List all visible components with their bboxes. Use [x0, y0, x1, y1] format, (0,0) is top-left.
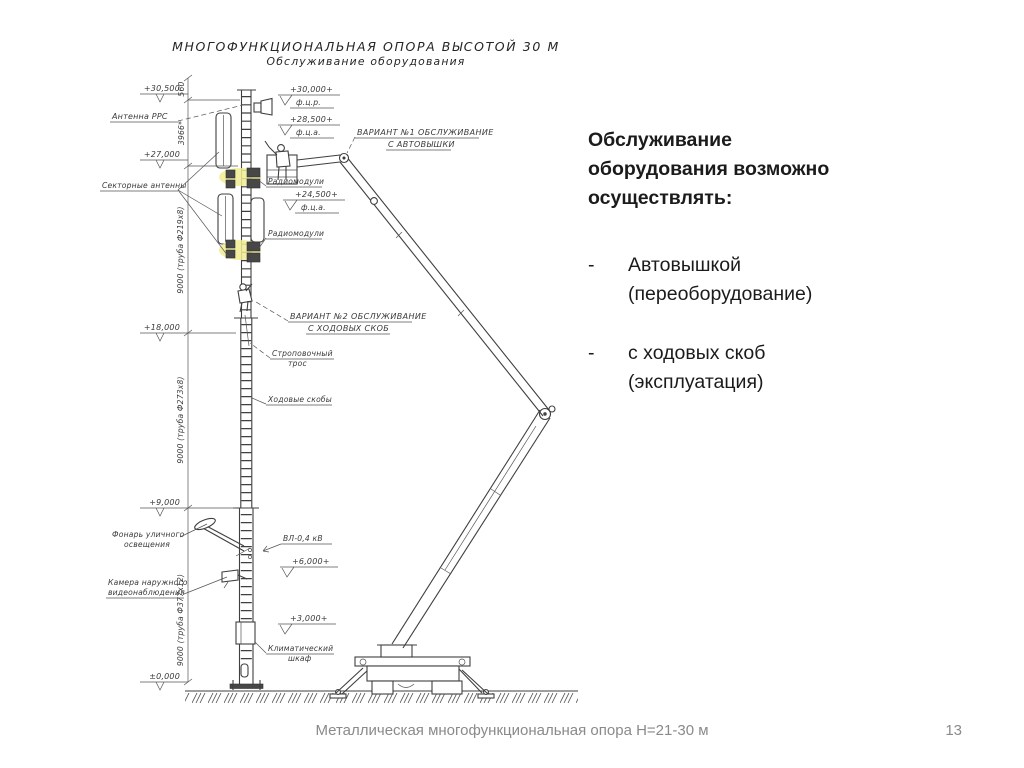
bullet-marker: -: [588, 251, 628, 309]
label-rungs: Ходовые скобы: [267, 395, 332, 404]
elev-0000: ±0,000: [149, 672, 180, 681]
panel-heading: Обслуживание оборудования возможно осуще…: [588, 126, 833, 213]
sector-antenna-upper: [216, 113, 231, 168]
label-variant2-line1: ВАРИАНТ №2 ОБСЛУЖИВАНИЕ: [290, 312, 427, 321]
label-sling-line2: трос: [288, 359, 307, 368]
label-lamp-line1: Фонарь уличного: [112, 530, 185, 539]
elev-6000: +6,000+: [292, 557, 330, 566]
elev-3000: +3,000+: [290, 614, 328, 623]
elev-28500-note: ф.ц.а.: [296, 128, 321, 137]
climbing-worker: [238, 284, 252, 346]
bullet-text: с ходовых скоб (эксплуатация): [628, 339, 833, 397]
boom-arm: [297, 154, 555, 649]
aerial-lift-truck: [330, 645, 494, 698]
dim-9000-f219: 9000 (труба Ф219х8): [176, 206, 185, 293]
dim-3966: 3966*: [177, 121, 186, 145]
label-power-line: ВЛ-0,4 кВ: [283, 534, 323, 543]
label-lamp-line2: освещения: [124, 540, 170, 549]
bullet-item-2: - с ходовых скоб (эксплуатация): [588, 339, 833, 397]
dim-9000-f273: 9000 (труба Ф273х8): [176, 376, 185, 463]
elev-30000-note: ф.ц.р.: [296, 98, 321, 107]
drawing-title: МНОГОФУНКЦИОНАЛЬНАЯ ОПОРА ВЫСОТОЙ 30 М: [172, 39, 560, 54]
label-sector-antennas: Секторные антенны: [102, 181, 187, 190]
drawing-subtitle: Обслуживание оборудования: [267, 55, 466, 68]
elev-30000: +30,000+: [290, 85, 333, 94]
elev-24500: +24,500+: [295, 190, 338, 199]
text-panel: Обслуживание оборудования возможно осуще…: [588, 126, 833, 397]
label-camera-line2: видеонаблюдения: [108, 588, 185, 597]
label-variant1-line2: С АВТОВЫШКИ: [388, 140, 455, 149]
label-radio-modules-2: Радиомодули: [268, 229, 324, 238]
page-number: 13: [945, 722, 962, 739]
label-sling-line1: Строповочный: [272, 349, 333, 358]
component-labels: Антенна РРС Секторные антенны Радиомодул…: [100, 104, 494, 663]
elev-24500-note: ф.ц.а.: [301, 203, 326, 212]
label-radio-modules-1: Радиомодули: [268, 177, 324, 186]
label-cabinet-line2: шкаф: [288, 654, 312, 663]
elev-18000: +18,000: [144, 323, 180, 332]
label-variant2-line2: С ХОДОВЫХ СКОБ: [308, 324, 389, 333]
bullet-item-1: - Автовышкой (переоборудование): [588, 251, 833, 309]
rrs-antenna: [254, 99, 272, 116]
label-variant1-line1: ВАРИАНТ №1 ОБСЛУЖИВАНИЕ: [357, 128, 494, 137]
label-antenna-rrs: Антенна РРС: [111, 112, 168, 121]
technical-drawing: МНОГОФУНКЦИОНАЛЬНАЯ ОПОРА ВЫСОТОЙ 30 М О…: [0, 0, 1024, 768]
label-cabinet-line1: Климатический: [268, 644, 333, 653]
elev-27000: +27,000: [144, 150, 180, 159]
elev-30500: +30,500: [144, 84, 180, 93]
label-camera-line1: Камера наружного: [108, 578, 188, 587]
slide: МНОГОФУНКЦИОНАЛЬНАЯ ОПОРА ВЫСОТОЙ 30 М О…: [0, 0, 1024, 768]
footer-caption: Металлическая многофункциональная опора …: [0, 722, 1024, 739]
elev-9000: +9,000: [149, 498, 180, 507]
bullet-marker: -: [588, 339, 628, 397]
bullet-text: Автовышкой (переоборудование): [628, 251, 833, 309]
climate-cabinet: [236, 622, 255, 677]
elev-28500: +28,500+: [290, 115, 333, 124]
